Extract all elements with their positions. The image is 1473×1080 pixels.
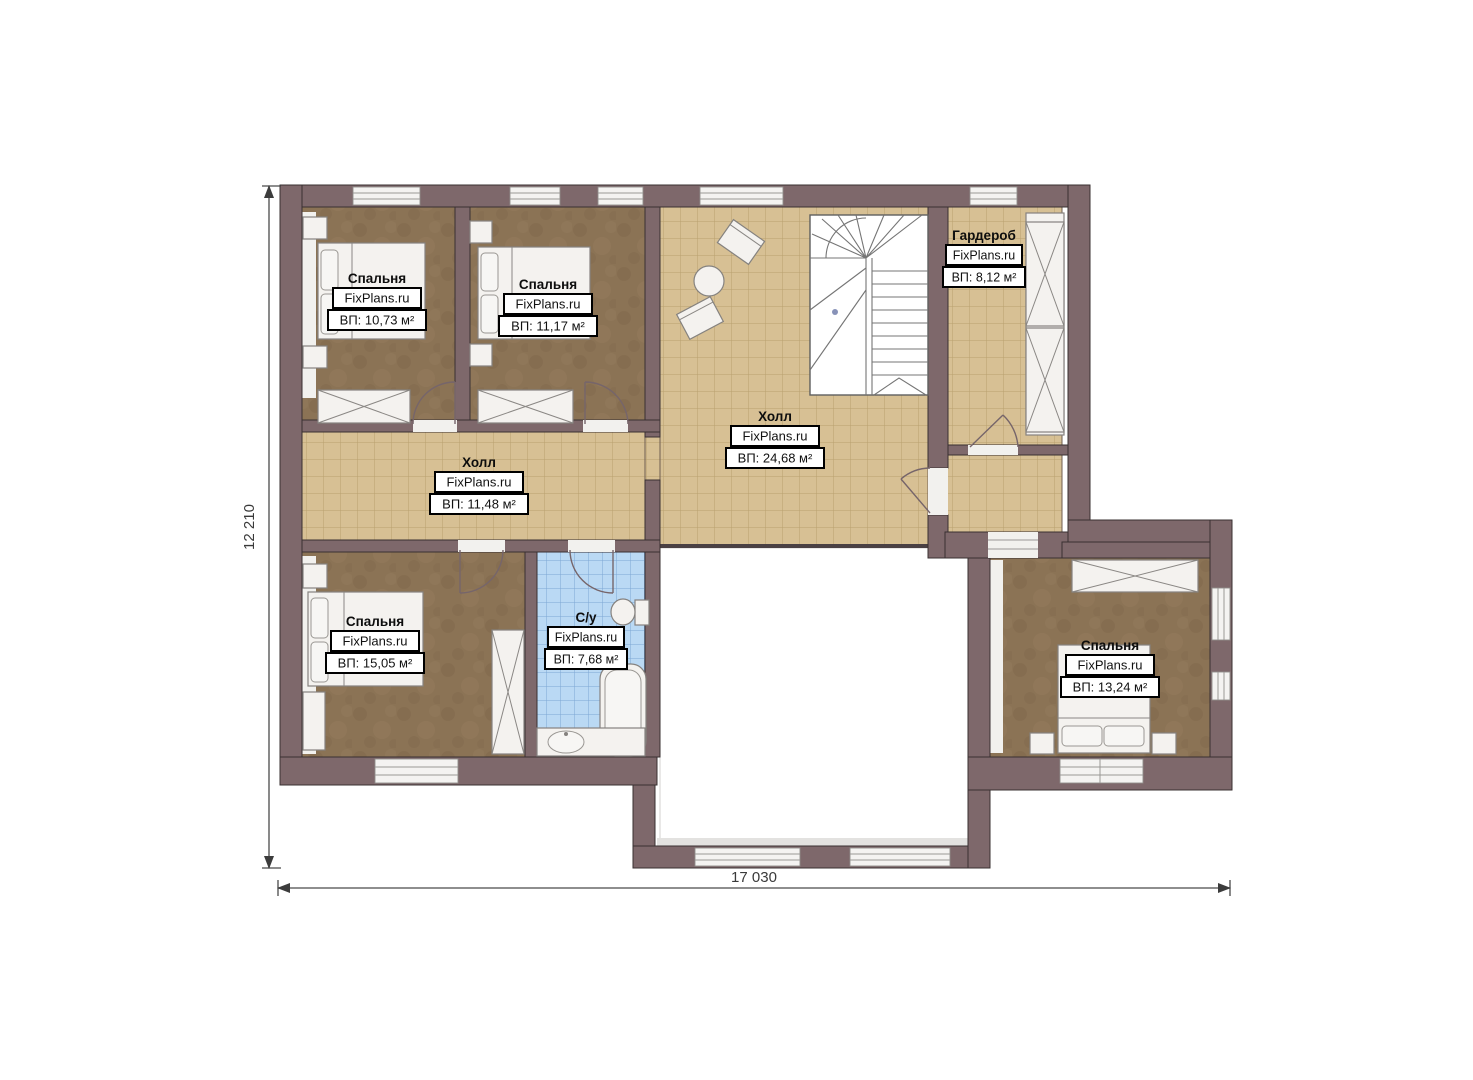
brand-label: FixPlans.ru: [344, 291, 409, 306]
wall-bedroom3-bath: [525, 552, 537, 757]
window: [375, 759, 458, 783]
wall-extension-top: [1068, 520, 1232, 542]
window: [700, 187, 783, 205]
bedroom-1-niche: [302, 212, 316, 398]
bench-icon: [303, 692, 325, 750]
pillow: [311, 598, 328, 638]
nightstand-icon: [470, 221, 492, 243]
window: [970, 187, 1017, 205]
pillow: [1062, 726, 1102, 746]
wall-bath-right: [645, 540, 660, 757]
hall-opening-floor: [645, 437, 660, 480]
wall-bedroom4-left: [968, 558, 990, 757]
threshold-bedroom-4: [988, 532, 1038, 558]
wall-wardrobe-right: [1068, 185, 1090, 542]
window: [1060, 759, 1143, 783]
brand-label: FixPlans.ru: [742, 429, 807, 444]
wall-bedroom4-top: [1062, 542, 1210, 558]
area-label: ВП: 15,05 м²: [338, 656, 413, 671]
stair-post: [832, 309, 838, 315]
round-table-icon: [694, 266, 724, 296]
nightstand-icon: [470, 344, 492, 366]
room-name: Спальня: [346, 614, 404, 629]
brand-label: FixPlans.ru: [342, 634, 407, 649]
void-open-space: [660, 548, 968, 846]
door-gap-bedroom-1: [413, 420, 457, 432]
dimension-vertical: 12 210: [241, 185, 281, 869]
room-label-wardrobe: Гардероб FixPlans.ru ВП: 8,12 м²: [943, 228, 1025, 287]
wall-right: [1210, 520, 1232, 790]
nightstand-icon: [303, 217, 327, 239]
wardrobe-icon: [318, 390, 410, 423]
dimension-horizontal: 17 030: [277, 869, 1231, 896]
wall-bottom-left: [280, 757, 657, 785]
wall-bedroom2-hall: [645, 207, 660, 437]
area-label: ВП: 8,12 м²: [952, 271, 1017, 285]
wall-bedroom1-bedroom2: [455, 207, 470, 425]
floor-plan-page: Спальня FixPlans.ru ВП: 10,73 м² Спальня…: [0, 0, 1473, 1080]
pillow: [481, 295, 498, 333]
wall-left: [280, 185, 302, 785]
nightstand-icon: [303, 564, 327, 588]
door-gap-bedroom-3: [458, 540, 505, 552]
area-label: ВП: 10,73 м²: [340, 313, 415, 328]
room-name: Гардероб: [952, 228, 1016, 243]
window: [510, 187, 560, 205]
wall-corridor-hall-stub: [645, 480, 660, 540]
area-label: ВП: 11,48 м²: [442, 497, 516, 512]
stairs-icon: [810, 215, 928, 395]
room-name: С/у: [575, 610, 597, 625]
pillow: [481, 253, 498, 291]
brand-label: FixPlans.ru: [953, 249, 1016, 263]
width-dimension-label: 17 030: [731, 869, 777, 886]
window: [695, 848, 800, 866]
room-name: Холл: [758, 409, 792, 424]
area-label: ВП: 13,24 м²: [1073, 680, 1148, 695]
wall-protrusion-right: [968, 785, 990, 868]
hall-void-railing: [660, 544, 928, 548]
void-sill-strip: [657, 838, 968, 846]
room-name: Спальня: [348, 271, 406, 286]
area-label: ВП: 24,68 м²: [738, 451, 813, 466]
wardrobe-icon: [1072, 560, 1198, 592]
room-name: Спальня: [519, 277, 577, 292]
toilet-icon: [611, 599, 649, 625]
door-gap-hall-vestibule: [928, 468, 948, 515]
brand-label: FixPlans.ru: [515, 297, 580, 312]
room-name: Холл: [462, 455, 496, 470]
faucet: [564, 732, 568, 736]
window: [1212, 588, 1230, 640]
window: [1212, 672, 1230, 700]
wardrobe-icon: [1026, 213, 1064, 435]
nightstand-icon: [1030, 733, 1054, 754]
brand-label: FixPlans.ru: [1077, 658, 1142, 673]
sink-icon: [537, 728, 645, 756]
nightstand-icon: [1152, 733, 1176, 754]
window: [598, 187, 643, 205]
nightstand-icon: [303, 346, 327, 368]
wardrobe-icon: [478, 390, 573, 423]
door-gap-bedroom-2: [583, 420, 628, 432]
floor-plan: Спальня FixPlans.ru ВП: 10,73 м² Спальня…: [0, 0, 1473, 1080]
area-label: ВП: 7,68 м²: [554, 653, 619, 667]
window: [353, 187, 420, 205]
pillow: [321, 250, 338, 290]
pillow: [1104, 726, 1144, 746]
window: [850, 848, 950, 866]
wardrobe-icon: [492, 630, 524, 754]
height-dimension-label: 12 210: [241, 504, 258, 550]
brand-label: FixPlans.ru: [555, 631, 618, 645]
bedroom-4-niche: [990, 560, 1003, 753]
door-gap-bathroom: [568, 540, 615, 552]
door-gap-wardrobe: [968, 445, 1018, 455]
area-label: ВП: 11,17 м²: [511, 319, 585, 334]
room-name: Спальня: [1081, 638, 1139, 653]
brand-label: FixPlans.ru: [446, 475, 511, 490]
